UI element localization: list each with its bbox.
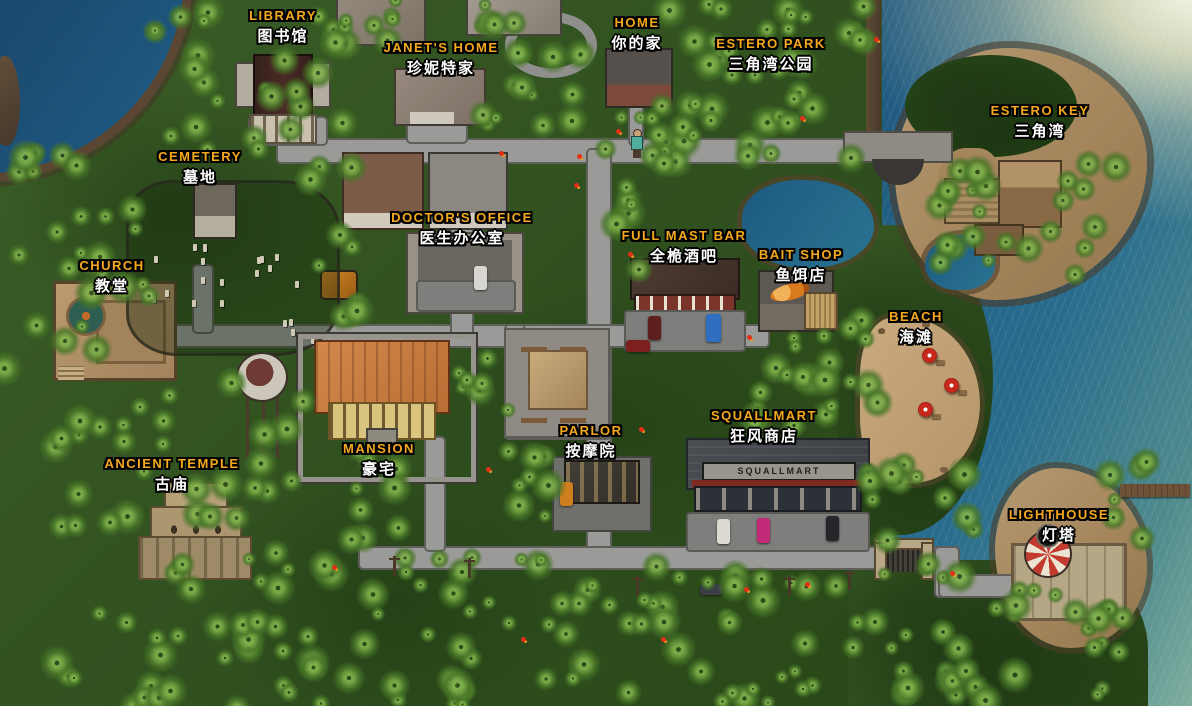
car <box>717 519 730 544</box>
label-zh: 墓地 <box>158 166 242 187</box>
map-label-bait-shop[interactable]: BAIT SHOP鱼饵店 <box>759 247 843 285</box>
map-label-doctors-office[interactable]: DOCTOR'S OFFICE医生办公室 <box>391 210 533 248</box>
squallmart-parking <box>688 514 868 550</box>
bench <box>521 418 547 423</box>
gravestone <box>220 300 224 307</box>
red-parrot-marker <box>874 37 879 42</box>
building-home[interactable] <box>607 50 671 106</box>
map-label-home[interactable]: HOME你的家 <box>611 15 662 53</box>
car <box>474 266 487 290</box>
key-deck <box>976 226 1022 254</box>
map-label-library[interactable]: LIBRARY图书馆 <box>249 8 317 46</box>
red-parrot-marker <box>800 116 805 121</box>
label-en: ESTERO PARK <box>716 36 825 51</box>
red-parrot-marker <box>805 582 810 587</box>
label-zh: 图书馆 <box>249 25 317 46</box>
label-zh: 海滩 <box>889 326 943 347</box>
red-parrot-marker <box>574 183 579 188</box>
label-en: ANCIENT TEMPLE <box>104 456 239 471</box>
car <box>648 316 661 340</box>
cemetery-grounds[interactable] <box>126 180 340 356</box>
label-en: LIBRARY <box>249 8 317 23</box>
label-zh: 狂风商店 <box>711 425 817 446</box>
label-en: DOCTOR'S OFFICE <box>391 210 533 225</box>
label-en: ESTERO KEY <box>991 103 1090 118</box>
red-parrot-marker <box>486 467 491 472</box>
label-zh: 医生办公室 <box>391 227 533 248</box>
power-pole <box>788 576 791 596</box>
label-zh: 鱼饵店 <box>759 264 843 285</box>
red-parrot-marker <box>661 637 666 642</box>
label-zh: 教堂 <box>79 275 144 296</box>
island-map: SQUALLMART <box>0 0 1192 706</box>
map-label-lighthouse[interactable]: LIGHTHOUSE灯塔 <box>1009 507 1109 545</box>
bench <box>560 347 586 352</box>
truck <box>706 314 721 342</box>
label-en: BAIT SHOP <box>759 247 843 262</box>
label-en: MANSION <box>343 441 415 456</box>
label-zh: 三角湾公园 <box>716 53 825 74</box>
gravestone <box>165 290 169 297</box>
stone-gate <box>876 540 932 580</box>
label-en: BEACH <box>889 309 943 324</box>
power-pole <box>468 558 471 578</box>
gravestone <box>220 279 224 286</box>
red-parrot-marker <box>521 637 526 642</box>
pier <box>1120 484 1190 497</box>
gravestone <box>152 296 156 303</box>
label-zh: 豪宅 <box>343 458 415 479</box>
map-label-squallmart[interactable]: SQUALLMART狂风商店 <box>711 408 817 446</box>
power-pole <box>636 576 639 596</box>
map-label-beach[interactable]: BEACH海滩 <box>889 309 943 347</box>
label-en: CEMETERY <box>158 149 242 164</box>
power-pole <box>393 556 396 576</box>
label-en: SQUALLMART <box>711 408 817 423</box>
gravestone <box>192 300 196 307</box>
label-zh: 古庙 <box>104 473 239 494</box>
label-en: CHURCH <box>79 258 144 273</box>
squallmart-sign: SQUALLMART <box>704 464 854 479</box>
gravestone <box>268 265 272 272</box>
label-zh: 你的家 <box>611 32 662 53</box>
beach-umbrella <box>922 348 937 363</box>
key-shack <box>1000 162 1060 226</box>
gravestone <box>154 256 158 263</box>
player-character <box>630 130 644 160</box>
gravestone <box>260 256 264 263</box>
label-zh: 灯塔 <box>1009 524 1109 545</box>
map-label-estero-key[interactable]: ESTERO KEY三角湾 <box>991 103 1090 141</box>
map-label-mansion[interactable]: MANSION豪宅 <box>343 441 415 479</box>
car <box>826 516 839 541</box>
building-full-mast-bar[interactable] <box>632 260 738 312</box>
car <box>626 340 650 352</box>
map-label-parlor[interactable]: PARLOR按摩院 <box>560 423 623 461</box>
building-mansion[interactable] <box>316 342 448 448</box>
taxi <box>560 482 573 506</box>
bench <box>521 347 547 352</box>
map-label-church[interactable]: CHURCH教堂 <box>79 258 144 296</box>
map-label-full-mast-bar[interactable]: FULL MAST BAR全桅酒吧 <box>622 228 747 266</box>
road-south <box>360 548 958 568</box>
beach-chair <box>932 414 941 419</box>
gravestone <box>255 270 259 277</box>
building-top-house <box>338 0 424 44</box>
gravestone <box>295 281 299 288</box>
beach-chair <box>936 360 945 365</box>
coast-cliff-strip <box>866 0 881 144</box>
key-shack-roof <box>946 180 1000 222</box>
building-squallmart[interactable]: SQUALLMART <box>688 440 868 510</box>
beach-umbrella <box>918 402 933 417</box>
gravestone <box>203 245 207 252</box>
label-en: LIGHTHOUSE <box>1009 507 1109 522</box>
label-en: PARLOR <box>560 423 623 438</box>
red-parrot-marker <box>332 565 337 570</box>
car <box>700 584 722 595</box>
label-en: FULL MAST BAR <box>622 228 747 243</box>
label-zh: 全桅酒吧 <box>622 245 747 266</box>
red-parrot-marker <box>950 571 955 576</box>
beach-chair <box>958 390 967 395</box>
map-label-estero-park[interactable]: ESTERO PARK三角湾公园 <box>716 36 825 74</box>
building-parlor[interactable] <box>566 462 638 502</box>
gravestone <box>291 329 295 336</box>
building-janets-home[interactable] <box>396 70 484 124</box>
gravestone <box>283 320 287 327</box>
red-parrot-marker <box>577 154 582 159</box>
map-label-cemetery[interactable]: CEMETERY墓地 <box>158 149 242 187</box>
gravestone <box>275 254 279 261</box>
gazebo <box>530 352 586 408</box>
label-en: JANET'S HOME <box>384 40 499 55</box>
water-tower <box>236 352 288 464</box>
red-parrot-marker <box>639 427 644 432</box>
map-label-ancient-temple[interactable]: ANCIENT TEMPLE古庙 <box>104 456 239 494</box>
gravestone <box>201 277 205 284</box>
gravestone <box>201 258 205 265</box>
label-en: HOME <box>611 15 662 30</box>
label-zh: 珍妮特家 <box>384 57 499 78</box>
beach-umbrella <box>944 378 959 393</box>
label-zh: 三角湾 <box>991 120 1090 141</box>
map-label-janets-home[interactable]: JANET'S HOME珍妮特家 <box>384 40 499 78</box>
car <box>757 518 770 543</box>
power-pole <box>848 570 851 590</box>
building-top-house <box>468 0 560 34</box>
gravestone <box>289 319 293 326</box>
label-zh: 按摩院 <box>560 440 623 461</box>
red-parrot-marker <box>499 151 504 156</box>
bridge <box>845 133 951 161</box>
building-library[interactable] <box>235 56 331 144</box>
red-parrot-marker <box>744 587 749 592</box>
gravestone <box>193 244 197 251</box>
red-parrot-marker <box>747 335 752 340</box>
red-parrot-marker <box>616 129 621 134</box>
